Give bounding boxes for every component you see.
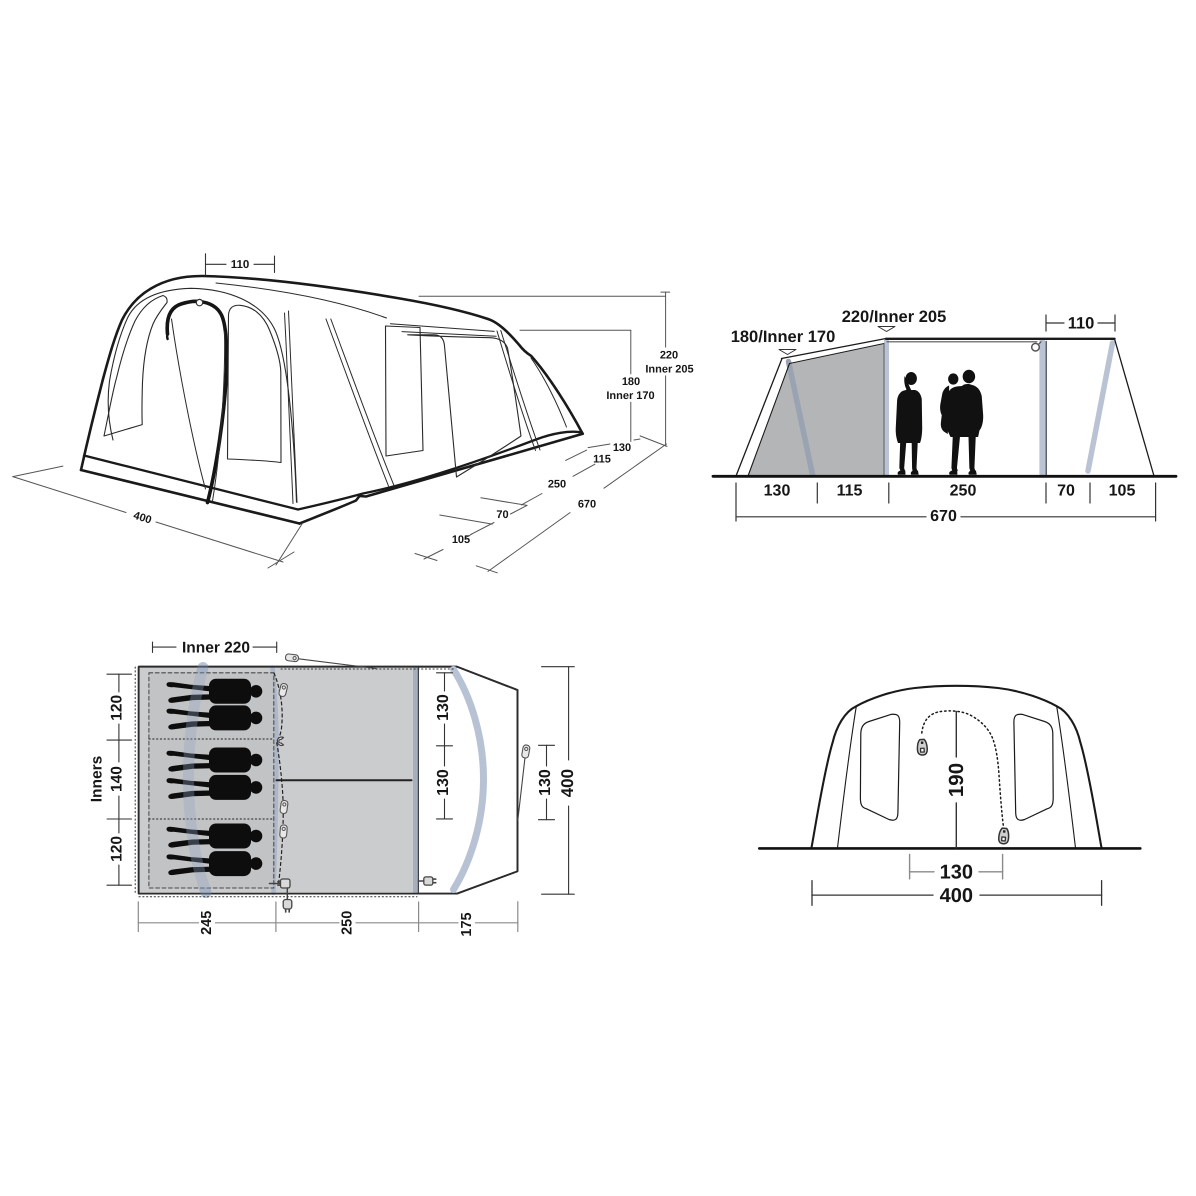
svg-text:120: 120	[109, 836, 126, 862]
svg-text:250: 250	[950, 483, 977, 500]
svg-text:250: 250	[339, 911, 355, 935]
svg-text:105: 105	[1109, 483, 1136, 500]
svg-text:670: 670	[930, 508, 957, 525]
svg-text:400: 400	[940, 885, 973, 907]
svg-text:400: 400	[558, 769, 577, 797]
svg-text:130: 130	[613, 442, 631, 454]
svg-text:Inner 205: Inner 205	[645, 364, 693, 376]
svg-text:245: 245	[199, 911, 215, 935]
svg-text:250: 250	[548, 478, 566, 490]
svg-text:110: 110	[1068, 315, 1095, 333]
svg-text:Inner 170: Inner 170	[606, 390, 654, 402]
svg-text:130: 130	[435, 769, 452, 796]
svg-text:220: 220	[660, 350, 678, 362]
svg-text:130: 130	[537, 769, 554, 796]
svg-text:180/Inner 170: 180/Inner 170	[731, 328, 836, 346]
svg-text:180: 180	[622, 376, 640, 388]
svg-text:115: 115	[837, 483, 863, 500]
svg-text:175: 175	[459, 912, 475, 936]
svg-text:190: 190	[945, 763, 968, 797]
svg-text:220/Inner 205: 220/Inner 205	[842, 308, 947, 326]
svg-text:Inner 220: Inner 220	[182, 639, 250, 656]
svg-text:105: 105	[452, 534, 470, 546]
svg-text:70: 70	[496, 509, 508, 521]
svg-text:Inners: Inners	[89, 756, 106, 803]
svg-text:130: 130	[435, 694, 452, 721]
svg-text:120: 120	[109, 695, 126, 721]
svg-text:70: 70	[1057, 483, 1075, 500]
svg-text:130: 130	[764, 483, 791, 500]
svg-text:110: 110	[231, 259, 250, 271]
svg-text:670: 670	[578, 499, 596, 511]
svg-text:130: 130	[940, 861, 973, 883]
svg-text:400: 400	[132, 510, 153, 527]
svg-text:115: 115	[593, 454, 611, 466]
svg-text:140: 140	[109, 766, 126, 792]
